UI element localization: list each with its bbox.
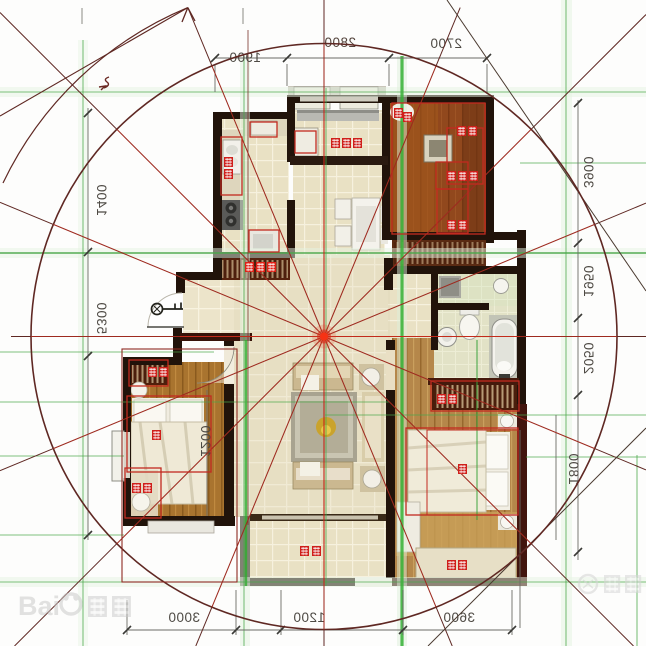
svg-text:3600: 3600 xyxy=(443,610,475,625)
svg-text:2800: 2800 xyxy=(324,35,356,50)
svg-text:2700: 2700 xyxy=(430,36,462,51)
svg-text:3000: 3000 xyxy=(168,610,200,625)
svg-text:1200: 1200 xyxy=(293,610,325,625)
svg-text:2050: 2050 xyxy=(581,342,596,374)
svg-text:3900: 3900 xyxy=(581,156,596,188)
svg-text:1950: 1950 xyxy=(581,265,596,297)
svg-text:1400: 1400 xyxy=(94,184,109,216)
svg-text:Bai: Bai xyxy=(18,591,60,621)
svg-text:5300: 5300 xyxy=(94,302,109,334)
